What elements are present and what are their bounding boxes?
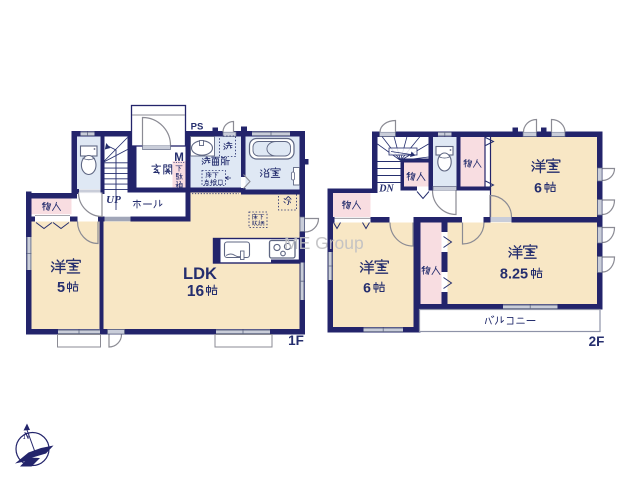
svg-text:1F: 1F (288, 333, 304, 348)
svg-text:8.25: 8.25 (500, 267, 528, 283)
svg-text:6: 6 (363, 280, 371, 296)
svg-text:DN: DN (378, 184, 394, 195)
svg-text:LDK: LDK (183, 265, 217, 283)
svg-text:2F: 2F (589, 334, 605, 349)
svg-text:N: N (22, 432, 31, 442)
svg-text:ME Group: ME Group (284, 233, 364, 253)
svg-text:16: 16 (187, 283, 205, 300)
svg-text:5: 5 (57, 280, 65, 296)
svg-text:6: 6 (534, 180, 542, 196)
svg-text:PS: PS (191, 122, 204, 133)
svg-text:UP: UP (106, 194, 121, 206)
